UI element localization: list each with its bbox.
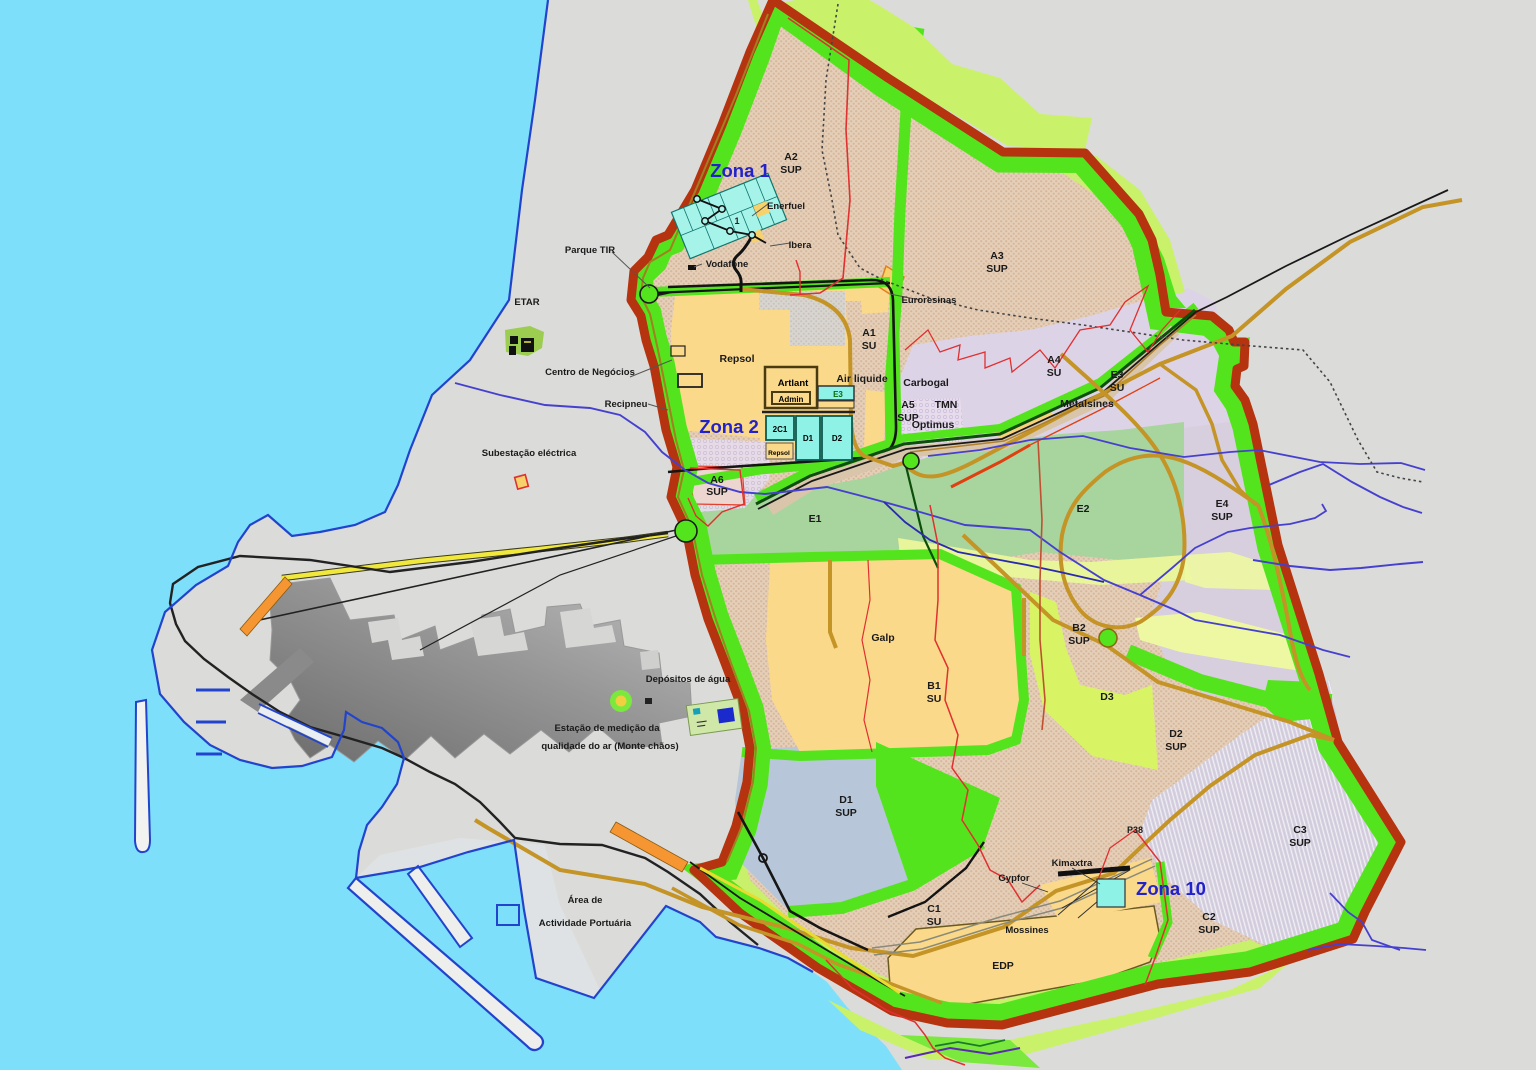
svg-text:E4: E4: [1216, 498, 1229, 510]
svg-text:C2: C2: [1202, 911, 1216, 923]
svg-text:Mossines: Mossines: [1005, 925, 1048, 936]
svg-text:E3: E3: [833, 390, 843, 399]
svg-text:Galp: Galp: [871, 632, 894, 644]
svg-text:E1: E1: [809, 513, 822, 525]
svg-text:SUP: SUP: [1165, 741, 1187, 753]
svg-text:Optimus: Optimus: [912, 419, 955, 431]
svg-text:SUP: SUP: [986, 263, 1008, 275]
svg-text:SUP: SUP: [835, 807, 857, 819]
svg-text:Subestação eléctrica: Subestação eléctrica: [482, 448, 577, 459]
svg-text:A6: A6: [710, 474, 724, 486]
svg-text:EDP: EDP: [992, 960, 1014, 972]
svg-text:SU: SU: [1047, 367, 1062, 379]
svg-text:SU: SU: [1110, 382, 1125, 394]
svg-text:SUP: SUP: [1211, 511, 1233, 523]
svg-text:Depósitos de água: Depósitos de água: [646, 674, 731, 685]
svg-text:1: 1: [734, 216, 739, 226]
svg-text:A5: A5: [901, 399, 915, 411]
svg-text:Zona 2: Zona 2: [699, 416, 759, 437]
svg-text:E3: E3: [1111, 369, 1124, 381]
svg-text:SU: SU: [927, 916, 942, 928]
svg-text:Recipneu: Recipneu: [605, 399, 648, 410]
svg-text:C1: C1: [927, 903, 941, 915]
svg-text:Parque TIR: Parque TIR: [565, 245, 615, 256]
svg-text:A2: A2: [784, 151, 798, 163]
svg-text:P38: P38: [1127, 825, 1143, 835]
svg-text:SUP: SUP: [1068, 635, 1090, 647]
svg-text:SUP: SUP: [1289, 837, 1311, 849]
svg-text:ETAR: ETAR: [514, 297, 539, 308]
svg-text:Repsol: Repsol: [768, 450, 790, 457]
svg-text:Actividade Portuária: Actividade Portuária: [539, 918, 632, 929]
svg-text:B1: B1: [927, 680, 941, 692]
svg-text:D2: D2: [1169, 728, 1183, 740]
svg-text:Carbogal: Carbogal: [903, 377, 949, 389]
svg-text:TMN: TMN: [935, 399, 958, 411]
svg-text:Enerfuel: Enerfuel: [767, 201, 805, 212]
svg-text:SUP: SUP: [1198, 924, 1220, 936]
svg-text:Zona 1: Zona 1: [710, 160, 770, 181]
svg-text:SU: SU: [927, 693, 942, 705]
svg-text:Gypfor: Gypfor: [998, 873, 1029, 884]
svg-text:SUP: SUP: [706, 486, 728, 498]
svg-text:C3: C3: [1293, 824, 1307, 836]
svg-text:qualidade do ar (Monte chãos): qualidade do ar (Monte chãos): [541, 741, 678, 752]
svg-text:Euroresinas: Euroresinas: [902, 295, 957, 306]
svg-text:Estação de medição da: Estação de medição da: [554, 723, 660, 734]
svg-text:D1: D1: [839, 794, 853, 806]
svg-text:A4: A4: [1047, 354, 1061, 366]
svg-text:SU: SU: [862, 340, 877, 352]
svg-text:Kimaxtra: Kimaxtra: [1052, 858, 1093, 869]
svg-text:Admin: Admin: [779, 395, 804, 404]
svg-text:B2: B2: [1072, 622, 1086, 634]
svg-text:A3: A3: [990, 250, 1004, 262]
svg-text:A1: A1: [862, 327, 876, 339]
svg-text:2C1: 2C1: [773, 425, 788, 434]
svg-text:Vodafone: Vodafone: [706, 259, 749, 270]
svg-text:D2: D2: [832, 434, 843, 443]
svg-text:Zona 10: Zona 10: [1136, 878, 1206, 899]
svg-text:Artlant: Artlant: [778, 378, 809, 389]
svg-text:Metalsines: Metalsines: [1060, 398, 1114, 410]
svg-text:Air liquide: Air liquide: [836, 373, 887, 385]
svg-text:Ibera: Ibera: [789, 240, 812, 251]
svg-text:E2: E2: [1077, 503, 1090, 515]
svg-text:Centro de Negócios: Centro de Negócios: [545, 367, 635, 378]
svg-text:D1: D1: [803, 434, 814, 443]
svg-text:D3: D3: [1100, 691, 1114, 703]
svg-text:SUP: SUP: [780, 164, 802, 176]
svg-text:Área de: Área de: [568, 895, 603, 906]
svg-text:Repsol: Repsol: [719, 353, 754, 365]
